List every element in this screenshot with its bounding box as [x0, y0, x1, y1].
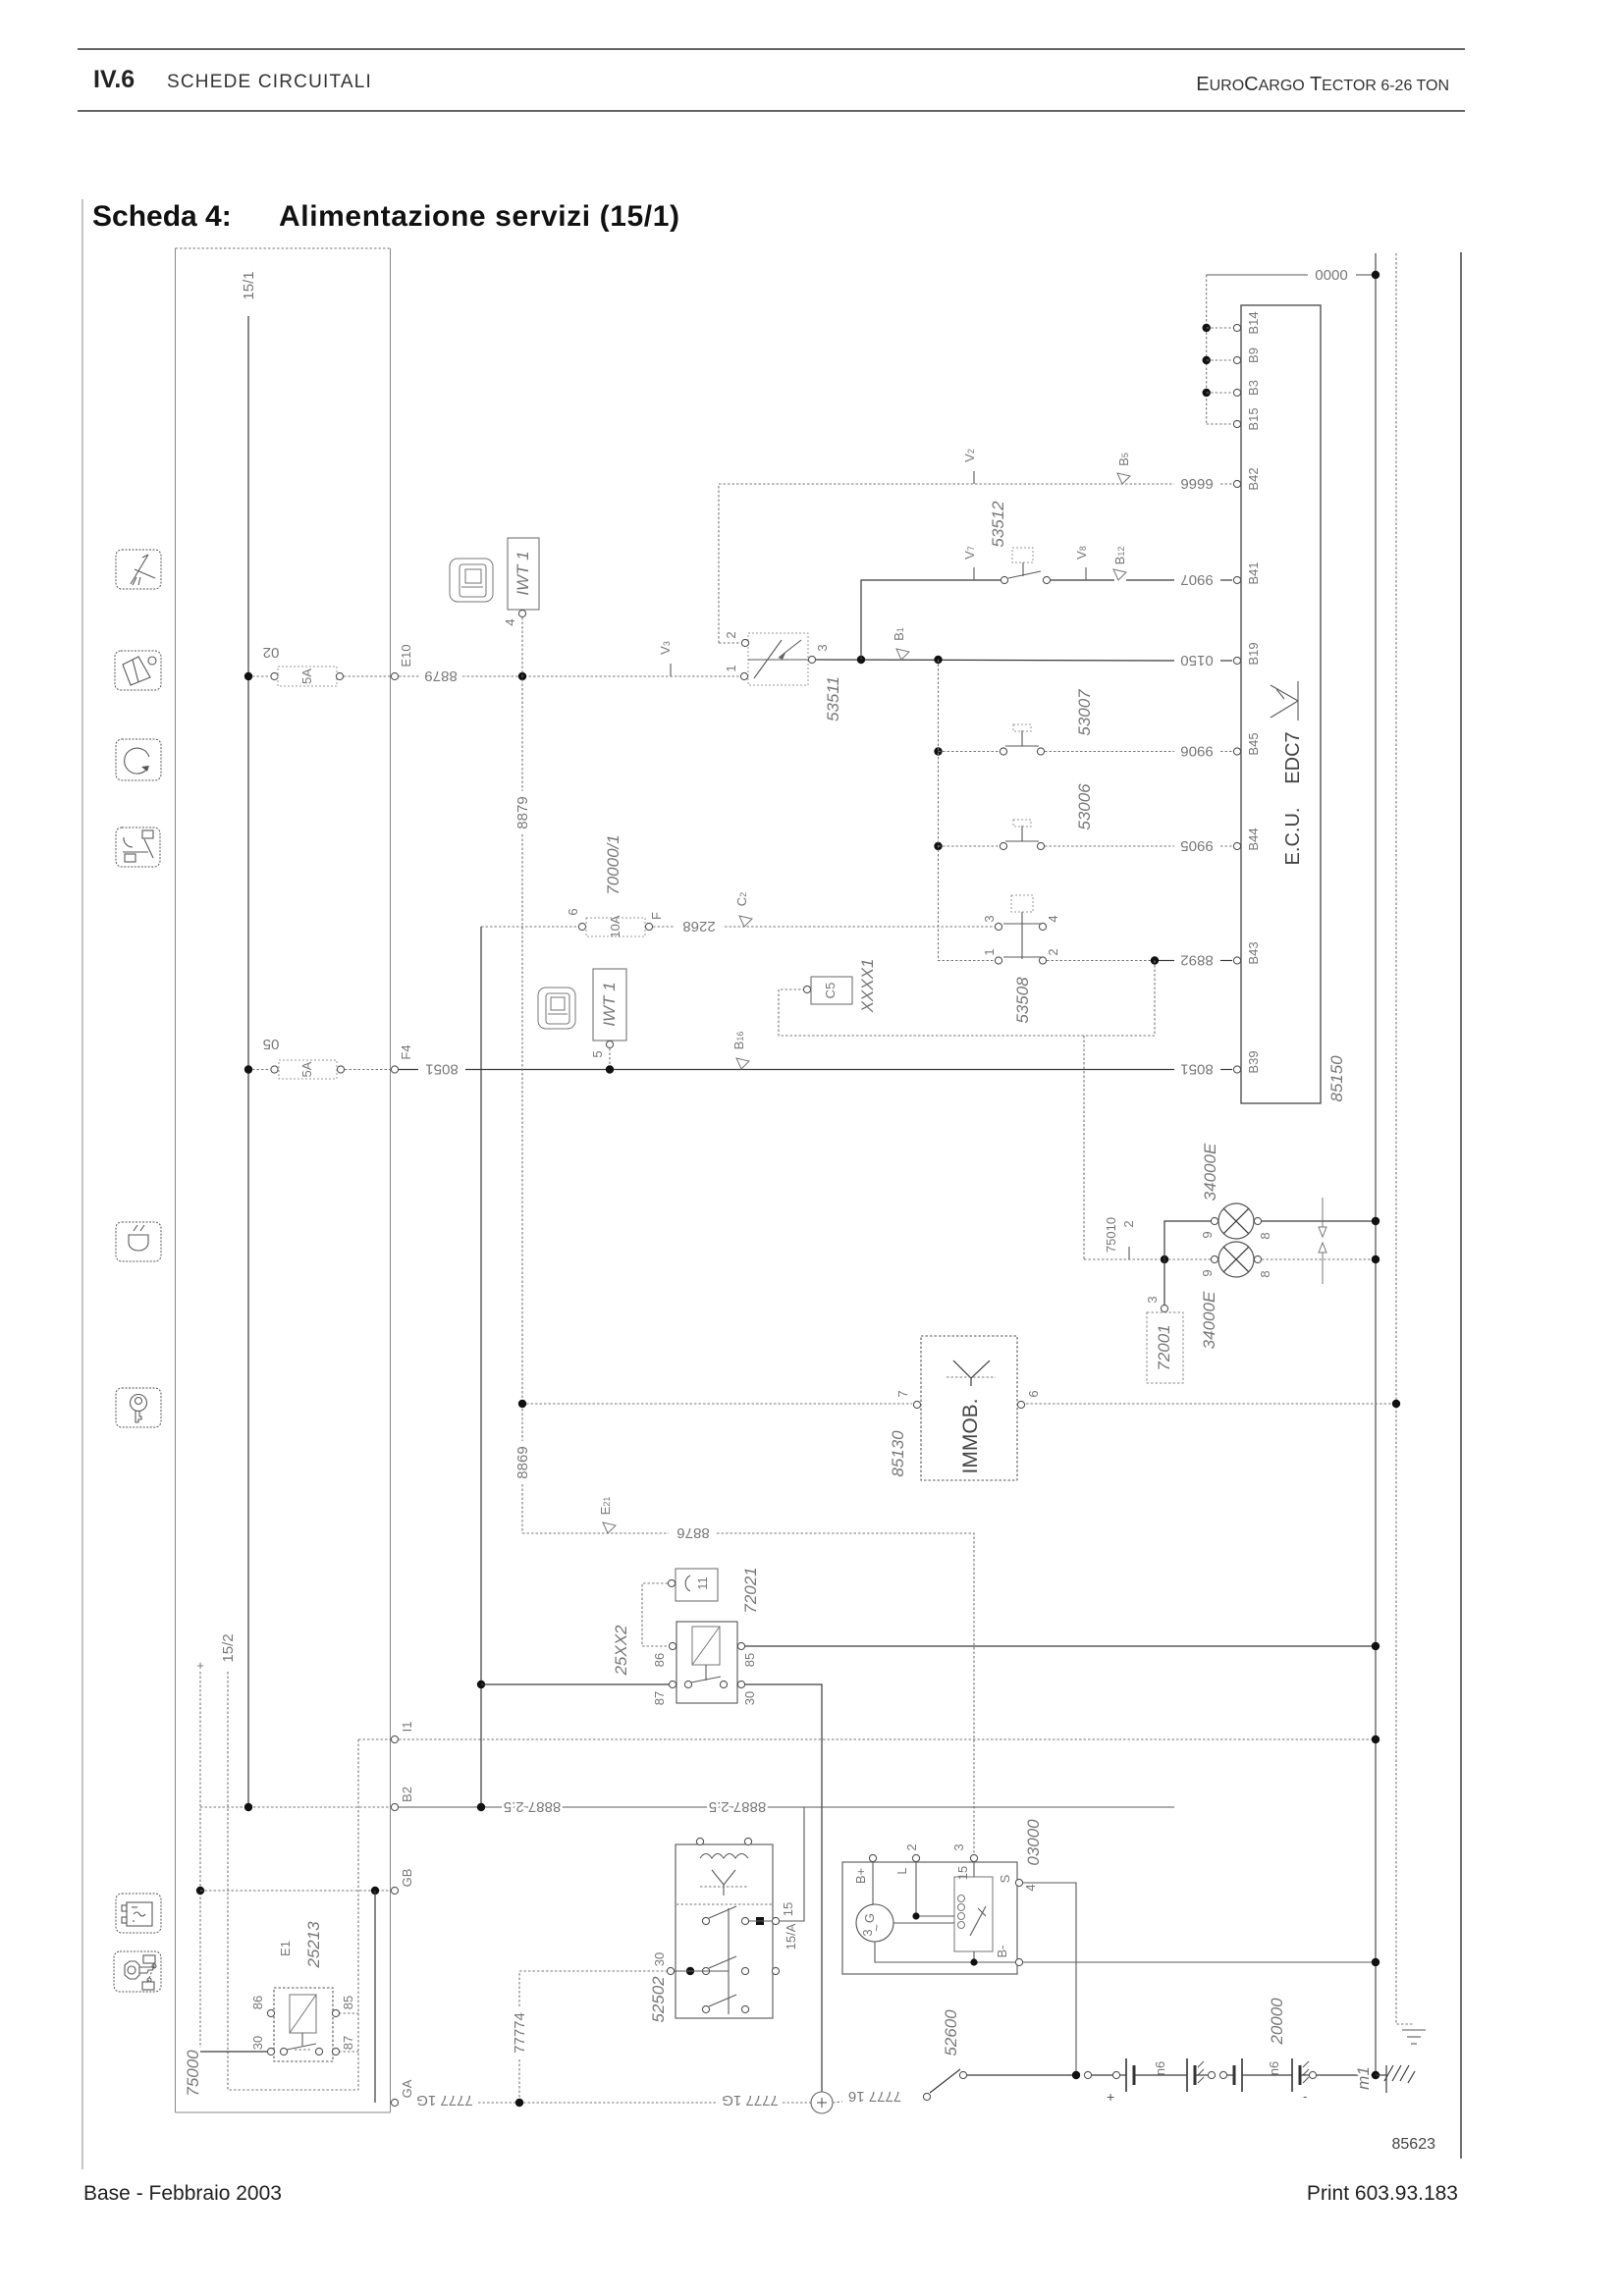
svg-text:+: + — [1107, 2089, 1114, 2105]
svg-text:86: 86 — [652, 1653, 667, 1667]
svg-text:B3: B3 — [1246, 380, 1261, 396]
svg-text:9999: 9999 — [1180, 476, 1213, 493]
svg-text:0150: 0150 — [1180, 652, 1213, 668]
svg-text:2: 2 — [1046, 948, 1060, 955]
svg-text:75010: 75010 — [1104, 1217, 1118, 1253]
svg-text:B+: B+ — [853, 1868, 868, 1884]
svg-text:L: L — [894, 1867, 909, 1874]
svg-text:EUROCARGO TECTOR 6-26 TON: EUROCARGO TECTOR 6-26 TON — [1196, 74, 1449, 95]
svg-text:n6: n6 — [1153, 2061, 1167, 2075]
svg-text:7: 7 — [895, 1390, 910, 1397]
svg-text:GA: GA — [400, 2079, 414, 2098]
svg-text:53006: 53006 — [1075, 783, 1094, 830]
svg-text:25XX2: 25XX2 — [612, 1625, 630, 1677]
svg-text:2: 2 — [1121, 1220, 1136, 1227]
svg-text:Alimentazione servizi (15/1): Alimentazione servizi (15/1) — [279, 200, 680, 233]
svg-text:53508: 53508 — [1013, 977, 1032, 1024]
svg-text:-: - — [1303, 2089, 1307, 2104]
svg-text:87: 87 — [341, 2036, 355, 2050]
svg-text:87: 87 — [652, 1691, 667, 1705]
svg-text:85: 85 — [742, 1653, 757, 1667]
svg-text:9907: 9907 — [1180, 571, 1213, 588]
svg-text:B39: B39 — [1246, 1050, 1261, 1073]
svg-text:B-: B- — [995, 1946, 1009, 1958]
svg-text:77774: 77774 — [512, 2012, 528, 2054]
svg-text:34000E: 34000E — [1201, 1143, 1219, 1201]
svg-text:8887 2.5: 8887 2.5 — [709, 1798, 766, 1815]
svg-text:85623: 85623 — [1392, 2136, 1436, 2153]
svg-text:30: 30 — [250, 2036, 265, 2050]
svg-text:85130: 85130 — [889, 1430, 907, 1477]
svg-text:IV.6: IV.6 — [93, 66, 135, 93]
svg-text:9: 9 — [1200, 1269, 1215, 1276]
svg-text:B2: B2 — [400, 1787, 414, 1802]
svg-text:3: 3 — [951, 1843, 966, 1850]
svg-text:XXXX1: XXXX1 — [858, 959, 877, 1014]
svg-text:53511: 53511 — [824, 676, 842, 721]
svg-text:IMMOB.: IMMOB. — [959, 1399, 982, 1474]
svg-text:E10: E10 — [399, 644, 413, 667]
svg-text:6: 6 — [1026, 1390, 1041, 1397]
svg-text:8876: 8876 — [676, 1524, 709, 1541]
svg-text:B42: B42 — [1246, 467, 1261, 490]
svg-text:2268: 2268 — [682, 918, 715, 934]
svg-text:F: F — [649, 912, 664, 920]
svg-text:3: 3 — [982, 915, 997, 922]
svg-text:G: G — [862, 1913, 877, 1923]
svg-text:03000: 03000 — [1024, 1819, 1043, 1866]
svg-text:3: 3 — [1145, 1296, 1160, 1303]
svg-text:8051: 8051 — [1180, 1061, 1213, 1078]
svg-text:8: 8 — [1258, 1270, 1272, 1277]
svg-text:15/A: 15/A — [784, 1923, 798, 1949]
svg-text:52600: 52600 — [942, 2009, 960, 2056]
svg-text:2: 2 — [904, 1843, 919, 1850]
svg-text:B14: B14 — [1246, 311, 1261, 334]
svg-text:Base - Febbraio 2003: Base - Febbraio 2003 — [83, 2182, 282, 2205]
svg-text:75000: 75000 — [184, 2050, 202, 2097]
svg-text:B44: B44 — [1246, 828, 1261, 850]
svg-text:B45: B45 — [1246, 732, 1261, 755]
svg-text:5: 5 — [590, 1050, 605, 1057]
svg-text:30: 30 — [652, 1952, 667, 1966]
svg-text:15: 15 — [955, 1866, 970, 1880]
svg-text:7777 1G: 7777 1G — [722, 2092, 779, 2109]
svg-text:n6: n6 — [1267, 2061, 1281, 2075]
svg-text:5A: 5A — [299, 1061, 314, 1077]
svg-text:F4: F4 — [399, 1044, 413, 1059]
svg-text:8051: 8051 — [425, 1061, 458, 1078]
svg-text:9905: 9905 — [1180, 837, 1213, 854]
svg-text:B19: B19 — [1246, 642, 1261, 665]
svg-text:70000/1: 70000/1 — [604, 834, 622, 894]
svg-text:7777 16: 7777 16 — [848, 2088, 901, 2105]
svg-text:B15: B15 — [1246, 407, 1261, 430]
svg-text:5A: 5A — [299, 668, 314, 684]
svg-text:E1: E1 — [278, 1941, 293, 1956]
svg-text:IWT 1: IWT 1 — [514, 551, 532, 595]
svg-text:Scheda 4:: Scheda 4: — [92, 200, 232, 233]
svg-text:52502: 52502 — [649, 1976, 668, 2023]
svg-text:8879: 8879 — [424, 667, 457, 684]
svg-text:4: 4 — [503, 618, 517, 625]
svg-text:B43: B43 — [1246, 941, 1261, 964]
svg-text:85: 85 — [341, 1996, 355, 2009]
svg-text:9: 9 — [1200, 1231, 1215, 1238]
svg-text:72021: 72021 — [741, 1567, 760, 1613]
svg-text:86: 86 — [250, 1996, 265, 2009]
svg-text:8887 2.5: 8887 2.5 — [504, 1798, 561, 1815]
svg-text:02: 02 — [263, 644, 280, 661]
svg-text:GB: GB — [400, 1869, 414, 1888]
svg-text:85150: 85150 — [1327, 1055, 1346, 1102]
svg-text:1: 1 — [982, 948, 997, 955]
svg-text:53007: 53007 — [1075, 689, 1094, 736]
svg-text:3: 3 — [860, 1929, 875, 1936]
svg-text:S: S — [998, 1874, 1012, 1883]
svg-text:E.C.U.: E.C.U. — [1282, 808, 1304, 866]
svg-text:IWT 1: IWT 1 — [600, 982, 619, 1026]
svg-text:B9: B9 — [1246, 347, 1261, 363]
svg-text:2: 2 — [724, 631, 738, 638]
svg-text:8892: 8892 — [1180, 952, 1213, 969]
svg-text:EDC7: EDC7 — [1282, 731, 1304, 783]
svg-text:Print 603.93.183: Print 603.93.183 — [1307, 2182, 1458, 2205]
svg-text:15/1: 15/1 — [241, 271, 257, 299]
svg-text:9906: 9906 — [1180, 743, 1213, 760]
svg-text:15: 15 — [781, 1902, 795, 1916]
svg-text:10A: 10A — [608, 915, 622, 937]
svg-text:+: + — [196, 1658, 204, 1673]
svg-text:SCHEDE CIRCUITALI: SCHEDE CIRCUITALI — [167, 72, 372, 92]
svg-text:m1: m1 — [1354, 2066, 1373, 2090]
svg-text:8: 8 — [1258, 1232, 1272, 1239]
svg-text:11: 11 — [695, 1576, 710, 1590]
svg-text:1: 1 — [724, 665, 738, 671]
svg-text:6: 6 — [566, 908, 580, 915]
svg-text:B41: B41 — [1246, 561, 1261, 584]
svg-text:8879: 8879 — [514, 796, 531, 828]
svg-text:53512: 53512 — [989, 501, 1007, 548]
svg-text:0000: 0000 — [1315, 266, 1347, 283]
svg-text:C5: C5 — [823, 983, 838, 999]
svg-text:8869: 8869 — [514, 1446, 531, 1478]
svg-text:I1: I1 — [400, 1722, 414, 1733]
svg-text:34000E: 34000E — [1200, 1291, 1218, 1349]
svg-text:7777 1G: 7777 1G — [416, 2092, 473, 2109]
svg-text:4: 4 — [1046, 915, 1060, 922]
svg-text:25213: 25213 — [304, 1921, 323, 1969]
svg-text:15/2: 15/2 — [220, 1633, 237, 1662]
svg-text:05: 05 — [263, 1036, 280, 1052]
svg-text:20000: 20000 — [1268, 1998, 1286, 2046]
svg-text:72001: 72001 — [1155, 1324, 1173, 1370]
svg-text:4: 4 — [1023, 1884, 1038, 1891]
svg-text:3: 3 — [815, 644, 830, 651]
svg-text:30: 30 — [742, 1691, 757, 1705]
